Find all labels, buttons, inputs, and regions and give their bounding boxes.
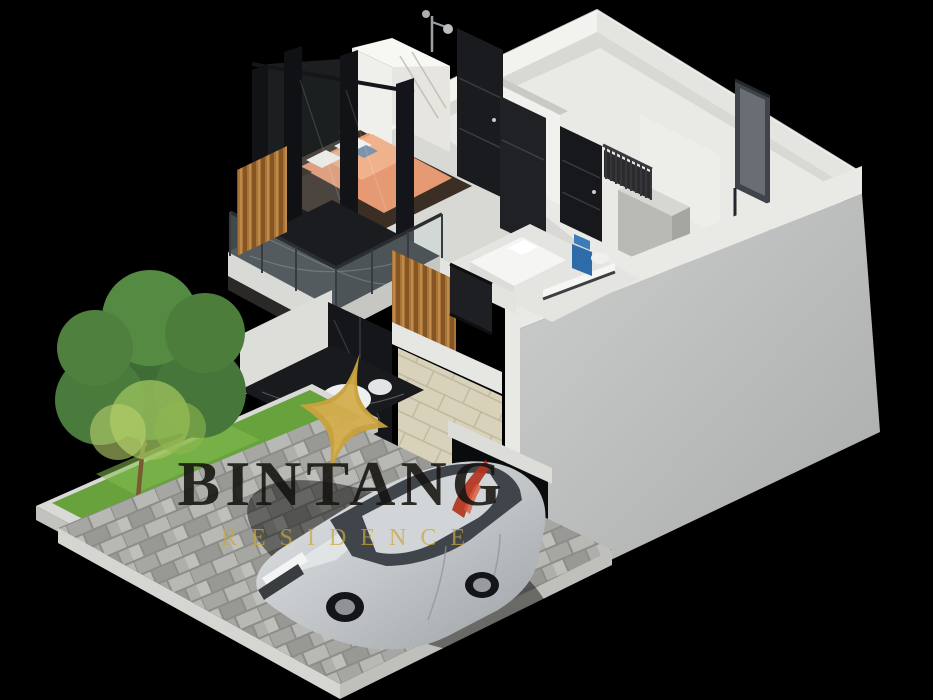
panel-door-2 xyxy=(560,126,602,242)
tree-foliage xyxy=(55,270,246,460)
wheel-rear xyxy=(465,572,499,598)
shower-fixture xyxy=(422,10,453,52)
wheel-front xyxy=(326,592,364,622)
shower-head xyxy=(443,24,453,34)
render-canvas: BINTANG RESIDENCE xyxy=(0,0,933,700)
chair-2 xyxy=(368,379,392,395)
door-handle xyxy=(492,118,496,122)
door-handle xyxy=(592,190,596,194)
panel-door-1 xyxy=(457,28,503,198)
panel-door-3 xyxy=(500,96,546,250)
scene-render xyxy=(0,0,933,700)
